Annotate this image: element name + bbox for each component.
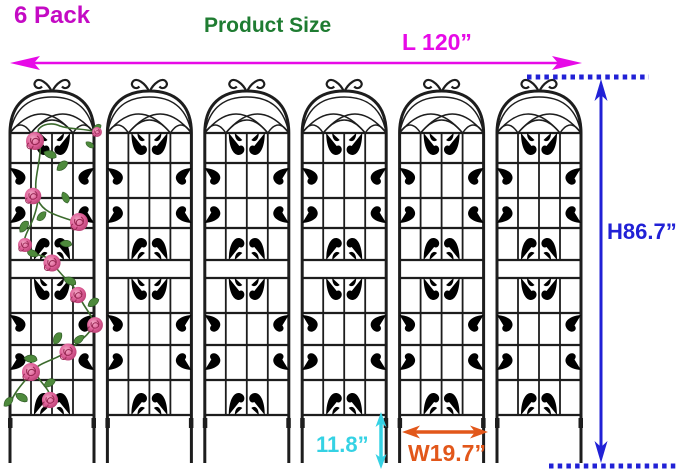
leaf-icon [61,191,70,204]
panel-width-dimension-arrow [402,426,488,439]
length-dimension-arrow [10,56,582,70]
rose-icon [22,363,40,381]
trellis-panel-2 [105,80,193,463]
leaf-icon [86,297,100,308]
rose-icon [43,254,60,271]
rose-icon [70,213,88,231]
rose-icon [26,132,44,150]
trellis-panel-6 [495,80,583,463]
page-title: Product Size [204,15,331,36]
leaf-icon [35,210,49,222]
leaf-icon [72,334,85,345]
trellis-panels [8,80,583,463]
rose-icon [18,238,32,252]
rose-icon [87,317,103,333]
trellis-dimension-graphic [0,0,679,471]
panel-width-value: W19.7” [408,442,486,465]
trellis-panel-5 [398,80,486,463]
rose-icon [25,188,42,205]
rose-icon [59,343,76,360]
product-size-diagram: 6 Pack Product Size L 120” H86.7” 11.8” … [0,0,679,471]
rose-icon [92,127,102,137]
rose-icon [70,287,86,303]
leg-height-value: 11.8” [316,434,369,456]
rose-icon [42,392,58,408]
trellis-panel-3 [203,80,291,463]
pack-count-badge: 6 Pack [14,4,90,28]
length-value: L 120” [402,31,472,54]
height-value: H86.7” [607,221,677,243]
trellis-panel-4 [300,80,388,463]
leaf-icon [55,159,70,172]
